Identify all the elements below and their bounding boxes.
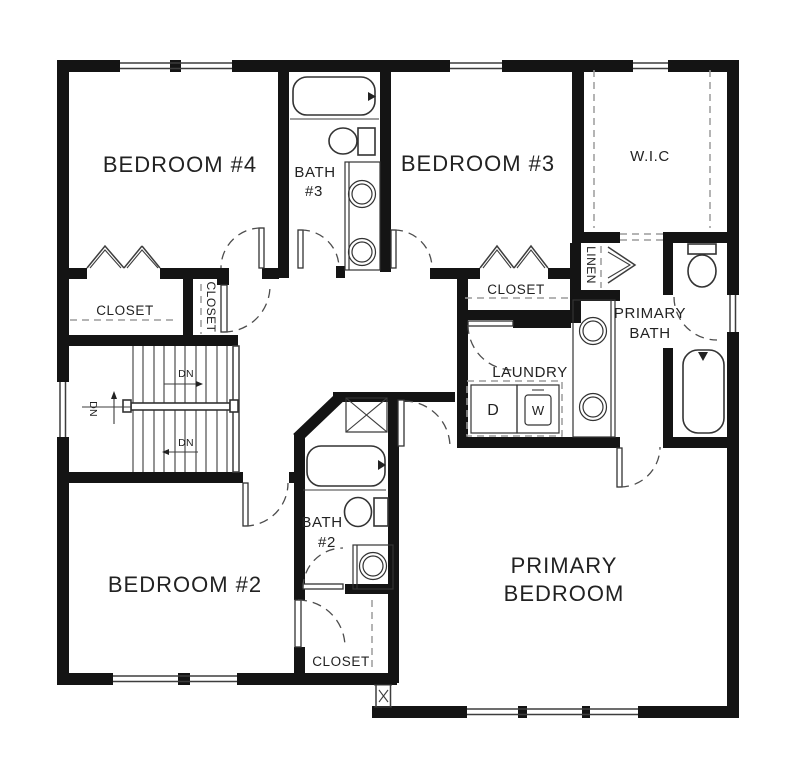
door-bedroom2-closet: [295, 600, 345, 647]
bathtub-bath3: [290, 77, 379, 119]
door-primary-bedroom: [617, 447, 660, 487]
bifold-doors-bedroom3-closet: [480, 246, 548, 268]
room-label-closet-bedroom2: CLOSET: [312, 654, 370, 669]
room-label-closet-hall: CLOSET: [204, 281, 218, 332]
arrow-right-icon: [196, 381, 203, 387]
door-bath3: [298, 230, 339, 268]
room-label-bath-3-line1: BATH: [294, 164, 335, 181]
window-bedroom3-top: [450, 63, 502, 69]
room-label-bath-2-line1: BATH: [301, 514, 342, 531]
window-wic-top: [633, 63, 668, 69]
room-label-wic: W.I.C: [630, 148, 670, 165]
door-laundry: [468, 321, 513, 370]
toilet-primary-bath: [688, 244, 716, 287]
vanity-bath3: [345, 162, 380, 270]
window-primary-bedroom-bottom: [467, 709, 638, 715]
room-label-primary-bedroom-line1: PRIMARY: [511, 553, 618, 578]
vanity-bath2: [353, 545, 393, 589]
stair-railing: [123, 400, 238, 412]
stair-direction-lower: DN: [162, 437, 198, 455]
laundry-appliances: [467, 381, 562, 436]
room-label-bedroom-4: BEDROOM #4: [103, 152, 257, 177]
dn-label-lower: DN: [178, 437, 194, 449]
dn-label-upper: DN: [178, 368, 194, 380]
room-label-primary-bedroom-line2: BEDROOM: [504, 581, 625, 606]
stair-direction-upper: DN: [164, 368, 203, 387]
bifold-doors-bedroom4-closet: [87, 246, 160, 268]
window-primary-bath-right: [730, 295, 736, 332]
door-bedroom2: [243, 483, 288, 526]
shower-bath2: [346, 398, 387, 432]
room-label-laundry: LAUNDRY: [492, 364, 568, 381]
stair-direction-landing: DN: [82, 391, 131, 424]
window-stairs-left: [60, 382, 66, 437]
door-bath2: [303, 548, 343, 589]
room-label-primary-bath-line1: PRIMARY: [614, 305, 686, 322]
room-label-closet-bedroom4: CLOSET: [96, 303, 154, 318]
window-bedroom2-bottom: [113, 676, 237, 682]
door-primary-hall: [398, 400, 450, 447]
room-label-closet-bedroom3: CLOSET: [487, 282, 545, 297]
room-label-linen: LINEN: [584, 246, 598, 284]
room-label-bedroom-2: BEDROOM #2: [108, 572, 262, 597]
arrow-left-icon: [162, 449, 169, 455]
stairs: DN DN DN: [82, 346, 239, 472]
room-label-primary-bath-line2: BATH: [629, 325, 670, 342]
door-bedroom4: [221, 228, 264, 268]
toilet-bath3: [329, 128, 375, 155]
dryer-label: D: [487, 402, 499, 419]
floor-plan-page: DN DN DN: [0, 0, 798, 768]
toilet-bath2: [345, 498, 389, 527]
washer-label: W: [532, 403, 545, 418]
door-bedroom3: [391, 230, 432, 268]
floor-plan-svg: DN DN DN: [0, 0, 798, 768]
room-label-bath-2-line2: #2: [318, 534, 336, 551]
window-closet-step: [374, 685, 392, 707]
bifold-door-linen: [608, 247, 635, 283]
arrow-up-icon: [111, 391, 117, 399]
bathtub-primary-bath: [683, 350, 724, 433]
room-label-bath-3-line2: #3: [305, 183, 323, 200]
dn-label-landing: DN: [87, 401, 99, 417]
door-hall-closet: [221, 285, 270, 332]
bathtub-bath2: [303, 446, 386, 490]
room-label-bedroom-3: BEDROOM #3: [401, 151, 555, 176]
